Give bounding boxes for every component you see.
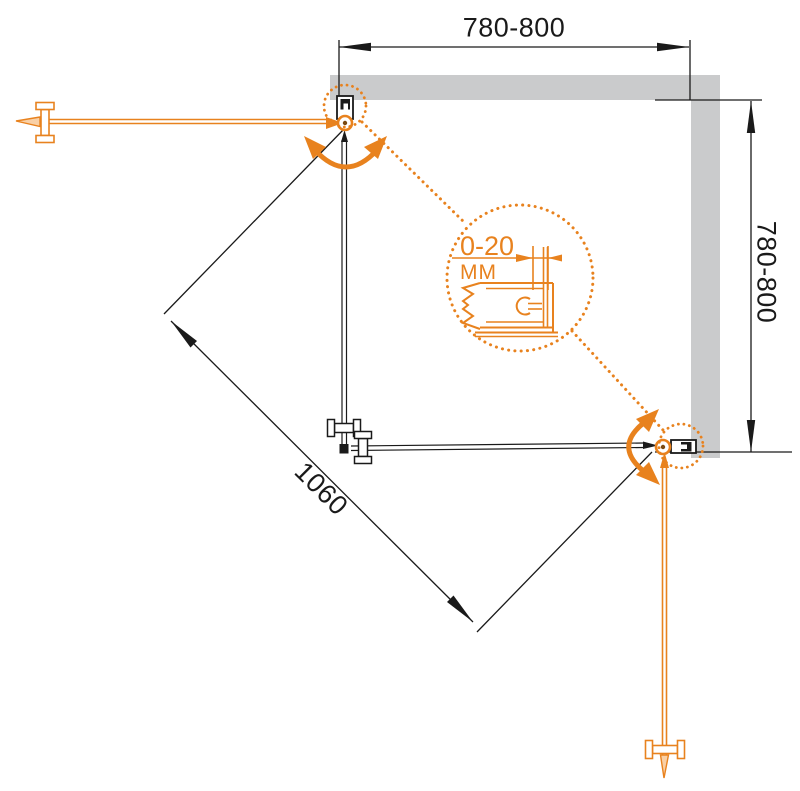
arrowhead-diag-lower	[447, 596, 473, 623]
door-panel-left-closed	[341, 130, 348, 445]
dimension-diagonal-entry	[164, 128, 652, 632]
door-panel-left-open	[16, 103, 343, 143]
wall-profile-zigzag	[463, 283, 480, 329]
arrowhead-up	[747, 101, 755, 133]
arrowhead-down	[747, 420, 755, 452]
wall-right	[691, 75, 720, 458]
top-width-dimension-label: 780-800	[463, 13, 566, 44]
right-height-dimension-label: 780-800	[751, 221, 782, 324]
door-panel-right-open	[646, 452, 685, 778]
adjustment-unit-label: ММ	[460, 261, 497, 285]
wall-top	[330, 75, 720, 100]
arrowhead-diag-upper	[171, 321, 197, 348]
technical-drawing-canvas: 780-800 780-800 1060 0-20 ММ	[0, 0, 800, 791]
arrowhead-right	[657, 43, 689, 51]
diagram-graphics	[0, 0, 800, 791]
knob-bottom-door-closed	[355, 432, 372, 464]
callout-leader-top	[362, 122, 466, 224]
adjustment-range-label: 0-20	[460, 231, 514, 262]
door-corner-junction	[340, 444, 349, 454]
profile-clip	[517, 297, 530, 314]
door-panel-bottom-closed	[351, 442, 658, 451]
door-end-cap	[661, 755, 669, 778]
arrowhead-left	[339, 43, 371, 51]
door-end-cap	[16, 117, 40, 127]
